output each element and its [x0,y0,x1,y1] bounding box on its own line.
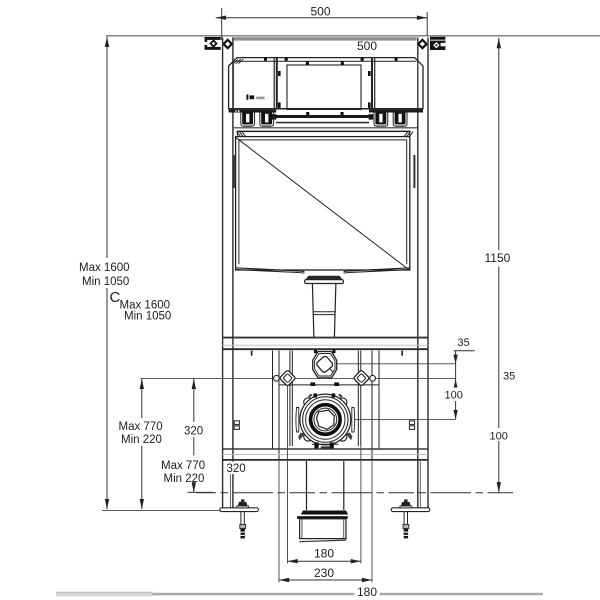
svg-text:Min 1050: Min 1050 [82,276,129,288]
svg-text:500: 500 [357,39,377,53]
svg-text:35: 35 [503,371,515,383]
svg-text:Max 770: Max 770 [161,460,205,472]
svg-text:100: 100 [490,431,508,443]
svg-text:320: 320 [227,463,246,475]
svg-text:180: 180 [314,547,334,561]
svg-text:Min 220: Min 220 [164,473,205,485]
svg-text:1150: 1150 [485,251,511,265]
svg-text:Min 220: Min 220 [121,434,162,446]
svg-text:180: 180 [357,585,377,599]
svg-text:320: 320 [184,426,203,438]
svg-text:Min 1050: Min 1050 [124,311,171,323]
svg-text:500: 500 [310,4,330,18]
svg-text:230: 230 [314,566,334,580]
svg-text:100: 100 [445,390,463,402]
svg-text:Max 770: Max 770 [119,421,163,433]
svg-text:35: 35 [458,337,470,349]
svg-text:Max 1600: Max 1600 [79,262,130,274]
